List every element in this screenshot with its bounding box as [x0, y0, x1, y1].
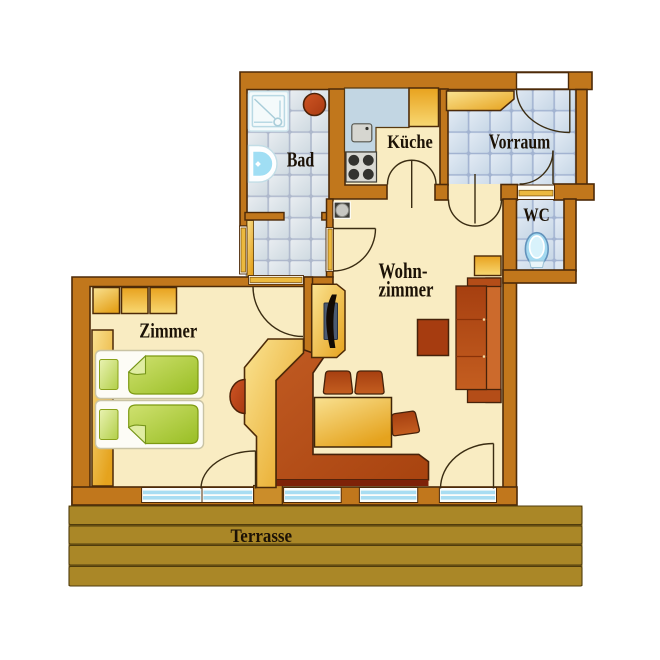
svg-text:Terrasse: Terrasse: [231, 526, 293, 547]
svg-text:WC: WC: [523, 205, 550, 226]
svg-text:Vorraum: Vorraum: [489, 130, 551, 154]
svg-text:Küche: Küche: [387, 132, 433, 153]
svg-text:Bad: Bad: [287, 148, 315, 172]
svg-text:Zimmer: Zimmer: [139, 319, 197, 343]
svg-text:zimmer: zimmer: [379, 277, 434, 302]
